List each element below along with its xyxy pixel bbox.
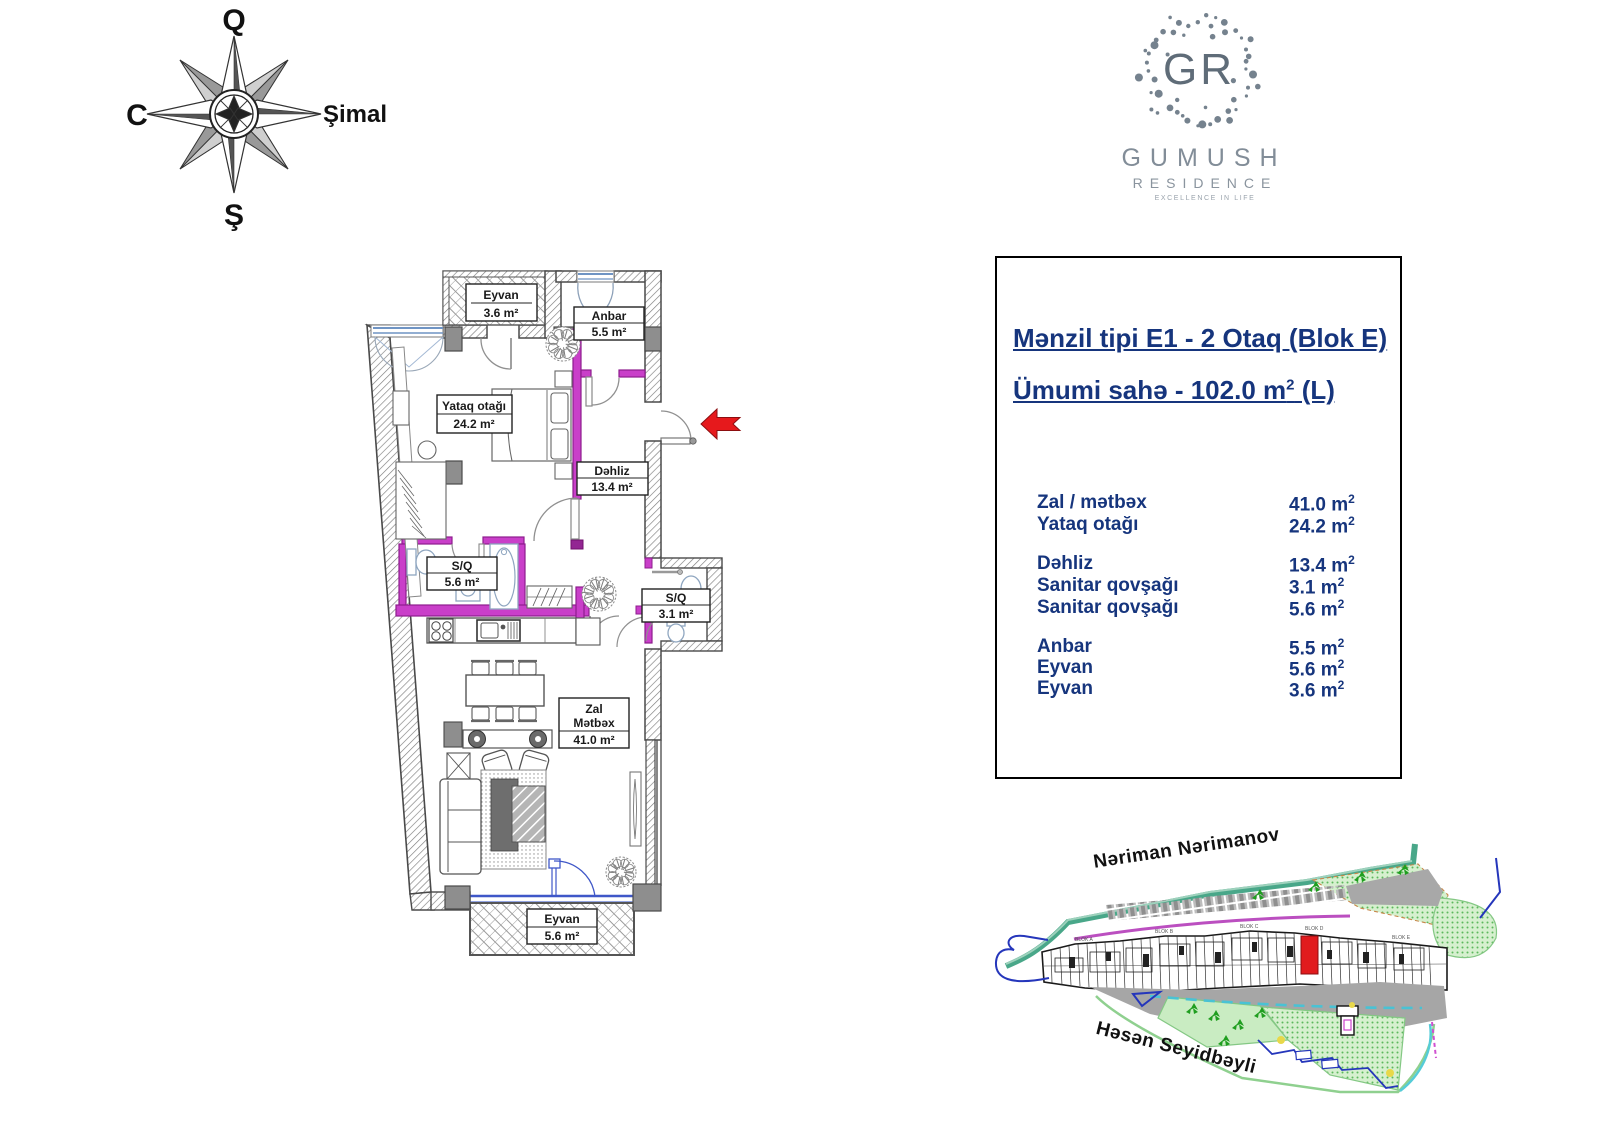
svg-text:5.6 m²: 5.6 m² — [545, 929, 580, 943]
svg-text:41.0 m²: 41.0 m² — [573, 733, 614, 747]
svg-text:3.1 m²: 3.1 m² — [659, 607, 694, 621]
svg-text:13.4 m²: 13.4 m² — [591, 480, 632, 494]
svg-text:BLOK A: BLOK A — [1075, 937, 1093, 943]
svg-text:S/Q: S/Q — [666, 591, 687, 605]
svg-text:BLOK E: BLOK E — [1392, 935, 1411, 941]
svg-text:Dəhliz: Dəhliz — [594, 464, 629, 478]
svg-text:Mətbəx: Mətbəx — [573, 716, 615, 730]
svg-text:3.6 m²: 3.6 m² — [484, 306, 519, 320]
svg-text:Eyvan: Eyvan — [544, 912, 579, 926]
svg-text:S/Q: S/Q — [452, 559, 473, 573]
svg-text:BLOK D: BLOK D — [1305, 926, 1324, 932]
svg-text:Anbar: Anbar — [592, 309, 627, 323]
svg-text:24.2 m²: 24.2 m² — [453, 417, 494, 431]
svg-text:BLOK B: BLOK B — [1155, 929, 1174, 935]
svg-text:Zal: Zal — [585, 702, 602, 716]
svg-text:5.6 m²: 5.6 m² — [445, 575, 480, 589]
svg-text:Yataq otağı: Yataq otağı — [442, 399, 506, 413]
svg-text:BLOK C: BLOK C — [1240, 924, 1259, 930]
svg-text:5.5 m²: 5.5 m² — [592, 325, 627, 339]
svg-text:Eyvan: Eyvan — [483, 288, 518, 302]
